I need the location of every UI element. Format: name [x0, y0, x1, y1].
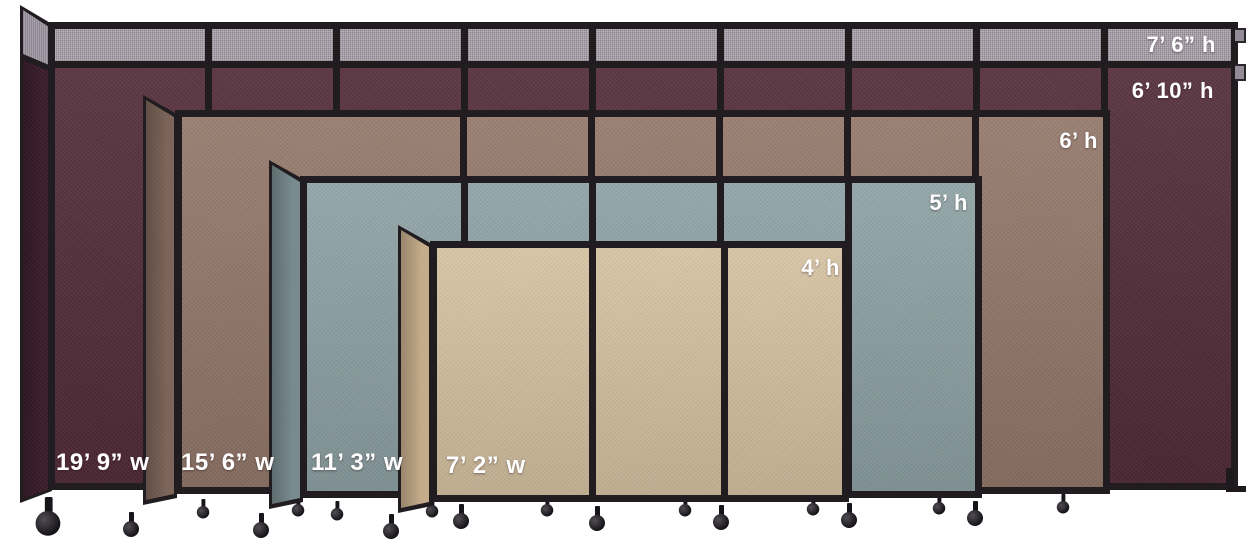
- panel-frame: [721, 248, 728, 495]
- partition-wall: [430, 241, 849, 502]
- panel-frame: [589, 248, 596, 495]
- end-panel-angled: [398, 225, 432, 513]
- room-divider-size-comparison-image: 7’ 6” h 6’ 10” h 6’ h 5’ h 4’ h 19’ 9” w…: [0, 0, 1248, 542]
- partition-sand: [0, 0, 1248, 542]
- end-panel-fabric: [398, 225, 432, 513]
